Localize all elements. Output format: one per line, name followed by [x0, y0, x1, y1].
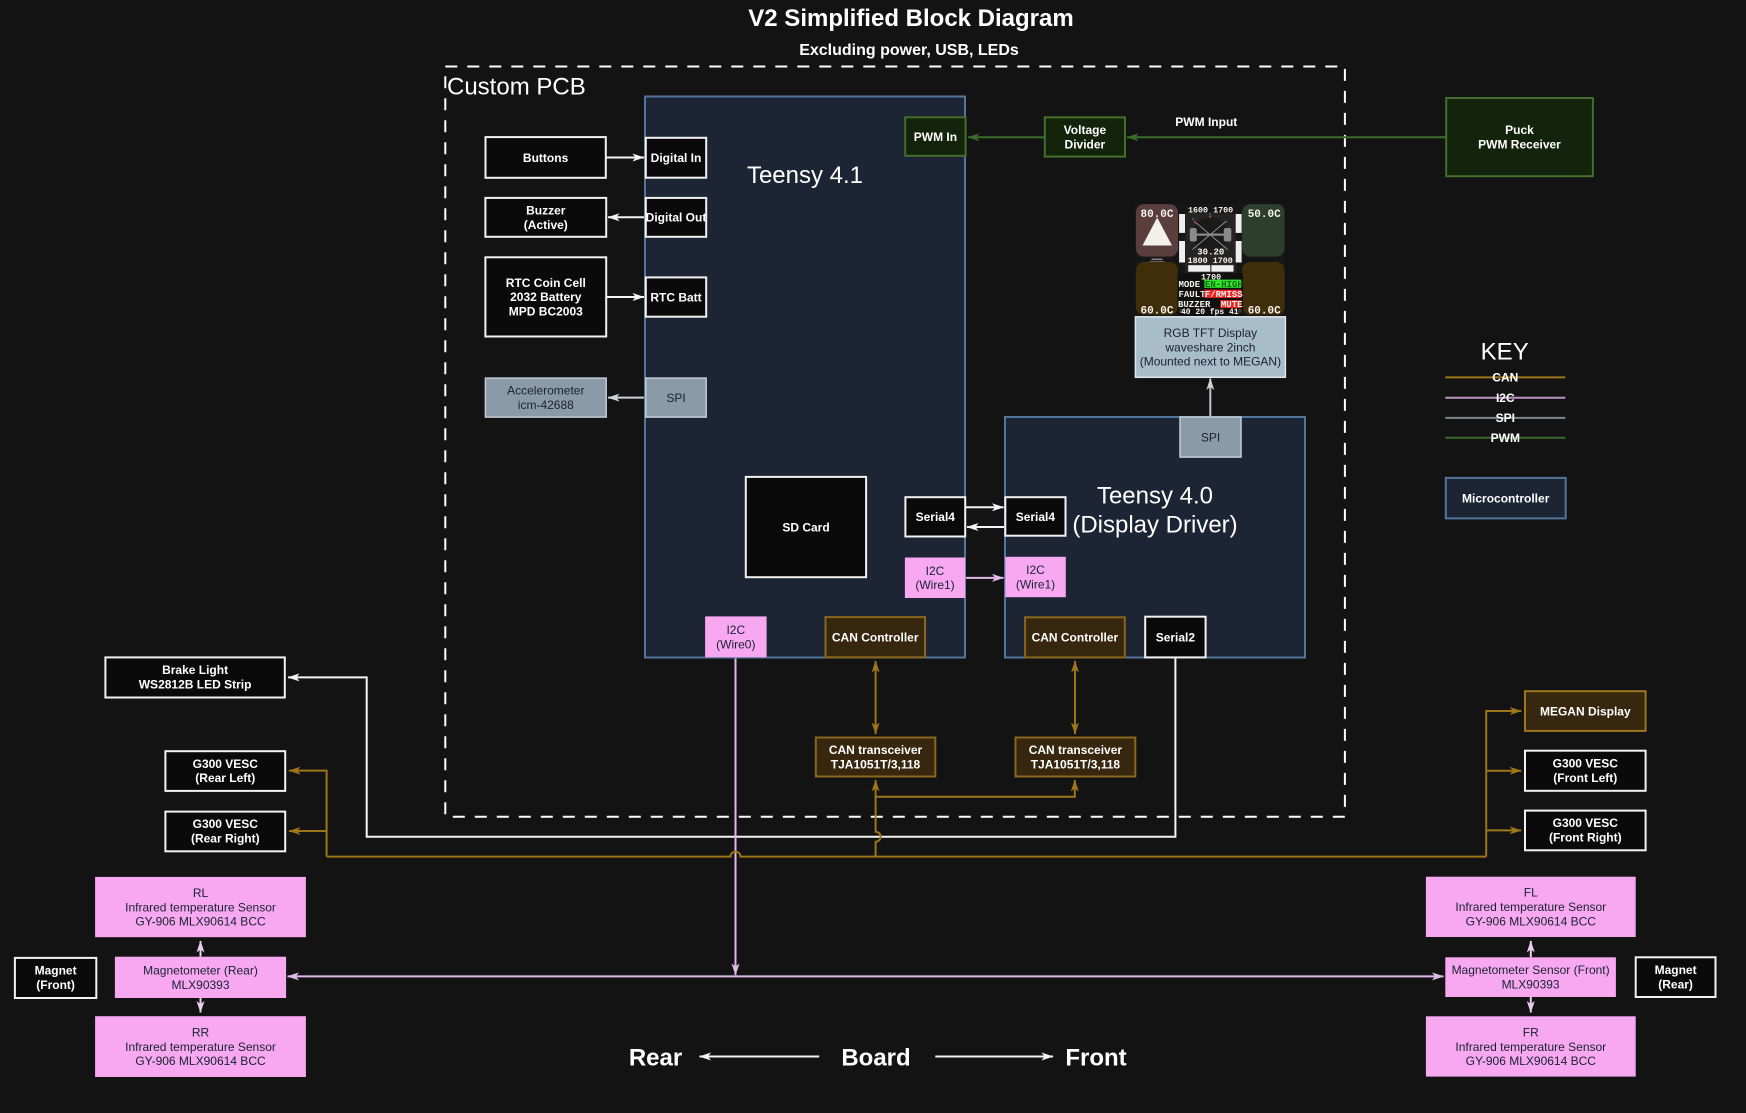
svg-text:SPI: SPI [1201, 430, 1220, 444]
svg-text:WS2812B LED Strip: WS2812B LED Strip [139, 678, 252, 692]
svg-text:Excluding power, USB, LEDs: Excluding power, USB, LEDs [799, 42, 1019, 59]
svg-text:Buttons: Buttons [523, 151, 569, 165]
svg-text:Magnetometer Sensor (Front): Magnetometer Sensor (Front) [1452, 963, 1610, 977]
svg-text:G300 VESC: G300 VESC [193, 817, 259, 831]
svg-text:MLX90393: MLX90393 [1502, 978, 1560, 992]
svg-text:MODE: MODE [1179, 280, 1201, 290]
svg-text:1800 1700: 1800 1700 [1188, 256, 1233, 266]
svg-text:MEGAN Display: MEGAN Display [1540, 704, 1631, 718]
svg-text:FR: FR [1523, 1025, 1539, 1039]
svg-text:waveshare 2inch: waveshare 2inch [1164, 340, 1255, 354]
svg-text:Magnet: Magnet [35, 964, 77, 978]
svg-text:Board: Board [841, 1045, 910, 1072]
svg-text:Brake Light: Brake Light [162, 663, 228, 677]
svg-text:MPD BC2003: MPD BC2003 [509, 305, 583, 319]
svg-text:CAN: CAN [1492, 371, 1518, 385]
svg-text:Magnetometer (Rear): Magnetometer (Rear) [143, 963, 258, 977]
svg-text:50.0C: 50.0C [1248, 209, 1281, 221]
svg-text:2032 Battery: 2032 Battery [510, 290, 582, 304]
svg-text:FL: FL [1524, 886, 1538, 900]
svg-text:G300 VESC: G300 VESC [1553, 757, 1619, 771]
svg-text:RTC Batt: RTC Batt [650, 290, 701, 304]
svg-text:(Wire1): (Wire1) [1016, 578, 1055, 592]
svg-text:(Wire1): (Wire1) [915, 578, 954, 592]
svg-text:Buzzer: Buzzer [526, 203, 566, 217]
svg-text:PWM: PWM [1491, 431, 1520, 445]
svg-text:Teensy 4.0: Teensy 4.0 [1097, 483, 1213, 510]
svg-text:Digital Out: Digital Out [646, 211, 707, 225]
svg-text:CAN Controller: CAN Controller [832, 631, 919, 645]
svg-text:GY-906 MLX90614 BCC: GY-906 MLX90614 BCC [1466, 1054, 1597, 1068]
svg-text:Serial4: Serial4 [1016, 510, 1056, 524]
svg-text:KEY: KEY [1481, 339, 1529, 366]
svg-text:(Front): (Front) [36, 978, 75, 992]
svg-text:(Active): (Active) [524, 218, 568, 232]
svg-text:MLX90393: MLX90393 [171, 978, 229, 992]
svg-text:RTC Coin Cell: RTC Coin Cell [506, 276, 586, 290]
svg-text:Voltage: Voltage [1064, 123, 1107, 137]
svg-text:GY-906 MLX90614 BCC: GY-906 MLX90614 BCC [135, 915, 266, 929]
svg-text:SPI: SPI [666, 391, 685, 405]
svg-text:(Rear): (Rear) [1658, 977, 1693, 991]
svg-text:F/RMISS: F/RMISS [1205, 290, 1243, 300]
svg-text:(Front Right): (Front Right) [1549, 831, 1622, 845]
svg-text:(Front Left): (Front Left) [1553, 771, 1617, 785]
svg-text:RL: RL [193, 886, 209, 900]
svg-text:I2C: I2C [726, 623, 745, 637]
svg-text:(Rear Left): (Rear Left) [195, 771, 255, 785]
svg-text:(Mounted next to MEGAN): (Mounted next to MEGAN) [1140, 355, 1281, 369]
svg-text:Infrared temperature Sensor: Infrared temperature Sensor [1455, 900, 1606, 914]
svg-text:SPI: SPI [1496, 411, 1515, 425]
svg-text:(Wire0): (Wire0) [716, 637, 755, 651]
svg-text:Rear: Rear [629, 1045, 682, 1072]
svg-text:SD Card: SD Card [782, 520, 829, 534]
svg-text:CAN transceiver: CAN transceiver [829, 743, 923, 757]
svg-text:icm-42688: icm-42688 [518, 398, 574, 412]
svg-text:TJA1051T/3,118: TJA1051T/3,118 [831, 758, 921, 772]
svg-text:I2C: I2C [1496, 391, 1515, 405]
svg-text:PWM Receiver: PWM Receiver [1478, 138, 1561, 152]
svg-text:CAN Controller: CAN Controller [1032, 631, 1119, 645]
svg-text:Digital In: Digital In [651, 151, 702, 165]
svg-text:40 20 fps 41: 40 20 fps 41 [1181, 308, 1239, 317]
svg-text:PWM Input: PWM Input [1175, 115, 1237, 129]
svg-text:I2C: I2C [926, 564, 945, 578]
svg-text:Infrared temperature Sensor: Infrared temperature Sensor [125, 900, 276, 914]
svg-text:Infrared temperature Sensor: Infrared temperature Sensor [1455, 1040, 1606, 1054]
svg-text:RGB TFT Display: RGB TFT Display [1164, 326, 1258, 340]
svg-text:Front: Front [1065, 1045, 1126, 1072]
svg-text:GY-906 MLX90614 BCC: GY-906 MLX90614 BCC [1466, 915, 1597, 929]
svg-text:V2 Simplified Block Diagram: V2 Simplified Block Diagram [748, 5, 1073, 32]
svg-text:60.0C: 60.0C [1140, 305, 1173, 317]
svg-text:Serial2: Serial2 [1156, 630, 1196, 644]
svg-text:G300 VESC: G300 VESC [193, 757, 259, 771]
svg-text:I2C: I2C [1026, 563, 1045, 577]
svg-text:(Rear Right): (Rear Right) [191, 832, 260, 846]
svg-text:G300 VESC: G300 VESC [1553, 816, 1619, 830]
svg-text:PWM In: PWM In [914, 130, 957, 144]
svg-text:TJA1051T/3,118: TJA1051T/3,118 [1031, 758, 1121, 772]
svg-text:Puck: Puck [1505, 123, 1534, 137]
svg-text:GY-906 MLX90614 BCC: GY-906 MLX90614 BCC [135, 1054, 266, 1068]
svg-text:Infrared temperature Sensor: Infrared temperature Sensor [125, 1040, 276, 1054]
svg-text:Divider: Divider [1065, 138, 1106, 152]
svg-text:FAULT: FAULT [1179, 290, 1207, 300]
svg-text:Teensy 4.1: Teensy 4.1 [747, 162, 863, 189]
svg-text:Microcontroller: Microcontroller [1462, 491, 1550, 505]
svg-text:Custom PCB: Custom PCB [447, 74, 586, 101]
svg-text:Magnet: Magnet [1655, 963, 1697, 977]
svg-text:EN-HIGH: EN-HIGH [1205, 280, 1243, 290]
svg-text:Accelerometer: Accelerometer [507, 384, 584, 398]
svg-text:60.0C: 60.0C [1248, 305, 1281, 317]
svg-text:(Display Driver): (Display Driver) [1072, 512, 1237, 539]
svg-text:CAN transceiver: CAN transceiver [1029, 743, 1123, 757]
svg-text:RR: RR [192, 1025, 210, 1039]
svg-text:Serial4: Serial4 [916, 510, 956, 524]
